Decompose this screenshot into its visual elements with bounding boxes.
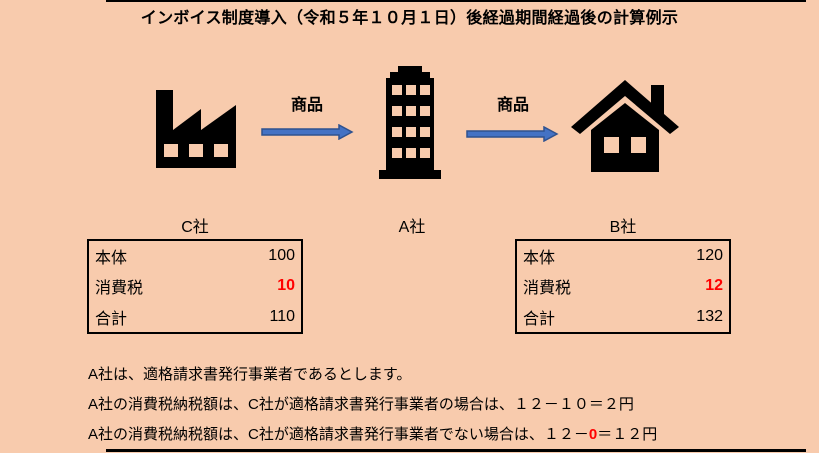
explanation-notes: A社は、適格請求書発行事業者であるとします。 A社の消費税納税額は、C社が適格請… [88,360,657,450]
house-icon [571,78,679,176]
price-value: 110 [269,308,295,326]
office-building-icon [376,66,444,179]
table-row: 本体 120 [517,241,729,271]
note-line-3: A社の消費税納税額は、C社が適格請求書発行事業者でない場合は、１２－0＝１２円 [88,420,657,450]
slide-title: インボイス制度導入（令和５年１０月１日）後経過期間経過後の計算例示 [0,4,819,28]
price-label: 合計 [523,305,555,329]
price-value: 132 [696,308,723,326]
table-row: 合計 110 [89,302,301,332]
price-value-highlighted: 10 [277,277,295,295]
price-label: 消費税 [95,274,143,298]
price-table-b: 本体 120 消費税 12 合計 132 [515,239,731,334]
price-value: 100 [268,247,295,265]
note-line-3-prefix: A社の消費税納税額は、C社が適格請求書発行事業者でない場合は、１２－ [88,426,589,443]
note-line-2: A社の消費税納税額は、C社が適格請求書発行事業者の場合は、１２－１０＝２円 [88,390,657,420]
right-arrow-icon [261,124,354,140]
slide-canvas: インボイス制度導入（令和５年１０月１日）後経過期間経過後の計算例示 商品 [0,0,819,453]
price-value-highlighted: 12 [705,277,723,295]
company-label-a: A社 [352,213,472,237]
price-label: 消費税 [523,274,571,298]
price-label: 本体 [95,244,127,268]
top-border-line [106,0,806,2]
company-label-b: B社 [515,213,731,237]
table-row: 消費税 10 [89,271,301,301]
price-table-c: 本体 100 消費税 10 合計 110 [87,239,303,334]
goods-label-1: 商品 [257,91,357,115]
price-value: 120 [696,247,723,265]
table-row: 合計 132 [517,302,729,332]
goods-label-2: 商品 [463,91,563,115]
table-row: 消費税 12 [517,271,729,301]
right-arrow-icon [466,126,559,142]
price-label: 合計 [95,305,127,329]
note-line-1: A社は、適格請求書発行事業者であるとします。 [88,360,657,390]
note-line-3-suffix: ＝１２円 [597,426,657,443]
table-row: 本体 100 [89,241,301,271]
company-label-c: C社 [87,213,303,237]
note-line-3-highlight: 0 [589,426,597,443]
factory-icon [150,78,242,170]
price-label: 本体 [523,244,555,268]
